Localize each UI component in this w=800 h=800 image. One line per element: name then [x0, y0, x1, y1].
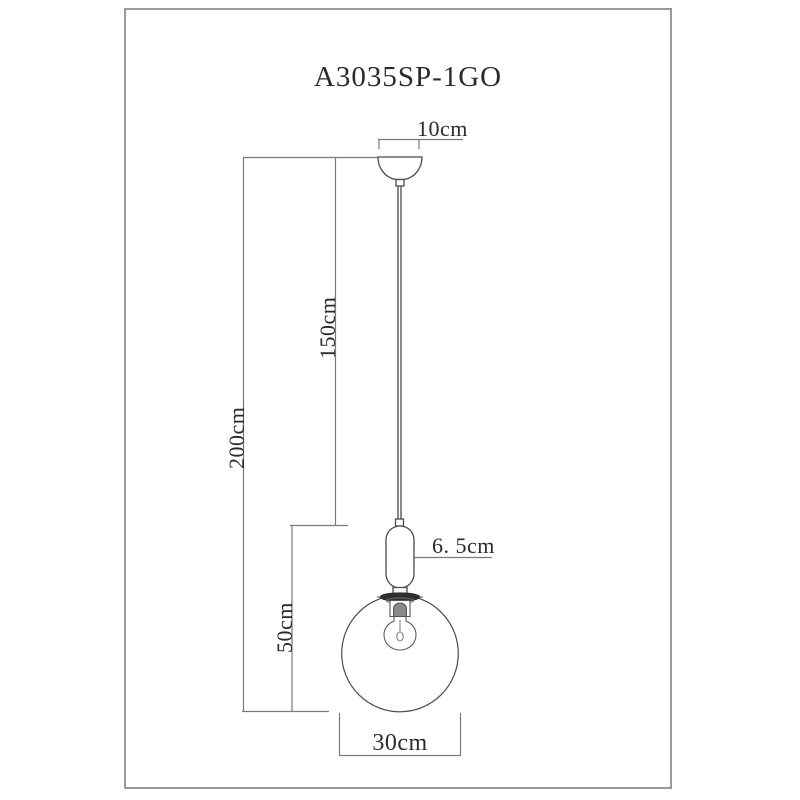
bulb-filament-loop [397, 632, 403, 641]
dimension-label-cord-length: 150cm [315, 301, 341, 359]
model-title: A3035SP-1GO [258, 61, 558, 94]
dimension-lines [242, 140, 492, 756]
dimension-label-body-height: 50cm [272, 605, 298, 653]
dimension-label-total-height: 200cm [224, 407, 250, 469]
ceiling-canopy [378, 157, 422, 180]
canopy-cord-connector [396, 180, 404, 187]
dimension-label-shade-diameter: 30cm [350, 730, 450, 757]
lamp-outline [342, 157, 459, 712]
socket-capsule [386, 526, 414, 588]
bulb-screw-base [394, 603, 407, 617]
capsule-cord-connector [396, 519, 404, 526]
product-diagram-page: A3035SP-1GO 10cm 150cm 200cm 50cm 6. 5cm… [0, 0, 800, 800]
dimension-label-socket-diameter: 6. 5cm [432, 533, 495, 559]
lamp-technical-drawing [0, 0, 800, 800]
dimension-label-canopy-width: 10cm [417, 116, 468, 142]
